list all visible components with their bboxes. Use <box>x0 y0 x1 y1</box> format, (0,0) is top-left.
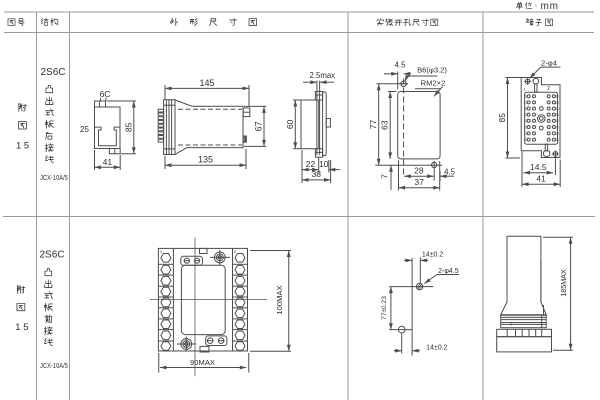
svg-text:22: 22 <box>306 159 316 169</box>
svg-text:22: 22 <box>555 119 559 123</box>
svg-text:25: 25 <box>524 107 528 111</box>
svg-text:23: 23 <box>524 113 528 117</box>
svg-text:29: 29 <box>524 95 528 99</box>
svg-text:38: 38 <box>312 169 322 179</box>
svg-text:145: 145 <box>199 78 214 88</box>
svg-text:4.5: 4.5 <box>395 61 407 70</box>
svg-text:JCX-10A/5: JCX-10A/5 <box>40 363 68 371</box>
svg-text:28: 28 <box>414 166 424 176</box>
svg-text:7: 7 <box>380 174 390 179</box>
svg-text:85: 85 <box>497 113 507 123</box>
svg-text:14±0.2: 14±0.2 <box>426 345 447 352</box>
svg-text:28: 28 <box>555 101 559 105</box>
svg-text:2.5max: 2.5max <box>310 71 336 80</box>
svg-text:67: 67 <box>254 121 264 131</box>
svg-text:24: 24 <box>555 113 559 117</box>
svg-text:1 5: 1 5 <box>16 141 29 152</box>
svg-text:15: 15 <box>524 138 528 142</box>
svg-text:16: 16 <box>555 138 559 142</box>
svg-text:63: 63 <box>380 120 390 130</box>
svg-text:100MAX: 100MAX <box>275 285 284 314</box>
svg-text:2-φ4: 2-φ4 <box>541 59 557 68</box>
svg-text:19: 19 <box>524 125 528 129</box>
svg-text:41: 41 <box>536 174 546 184</box>
svg-text:RM2×2: RM2×2 <box>421 79 446 88</box>
svg-text:21: 21 <box>524 119 528 123</box>
svg-text:2: 2 <box>547 86 550 92</box>
svg-text:77±0.23: 77±0.23 <box>381 296 388 320</box>
svg-text:2-φ4.5: 2-φ4.5 <box>438 268 459 275</box>
svg-text:60: 60 <box>285 119 295 129</box>
svg-text:B6(φ3.2): B6(φ3.2) <box>417 66 447 75</box>
svg-text:10: 10 <box>319 159 329 169</box>
svg-text:135: 135 <box>198 155 213 165</box>
svg-text:185MAX: 185MAX <box>559 269 568 297</box>
svg-text:27: 27 <box>524 101 528 105</box>
svg-text:41: 41 <box>103 157 113 167</box>
svg-text:77: 77 <box>368 120 378 130</box>
svg-text:6C: 6C <box>100 89 111 99</box>
svg-text:17: 17 <box>524 132 528 136</box>
svg-text:90MAX: 90MAX <box>190 358 215 367</box>
svg-text:2S6C: 2S6C <box>40 67 65 78</box>
svg-text:85: 85 <box>123 122 133 132</box>
svg-text:25: 25 <box>80 125 89 134</box>
svg-text:JCX-10A/5: JCX-10A/5 <box>40 175 68 183</box>
svg-text:14.5: 14.5 <box>530 162 547 172</box>
svg-text:30: 30 <box>555 95 559 99</box>
svg-text:14±0.2: 14±0.2 <box>422 251 443 258</box>
svg-text:26: 26 <box>555 107 559 111</box>
svg-text:20: 20 <box>555 125 559 129</box>
svg-text:37: 37 <box>414 177 424 187</box>
svg-text:1 5: 1 5 <box>15 322 28 333</box>
svg-text:18: 18 <box>555 132 559 136</box>
svg-text:2S6C: 2S6C <box>39 250 64 261</box>
svg-text:mm: mm <box>541 1 559 12</box>
